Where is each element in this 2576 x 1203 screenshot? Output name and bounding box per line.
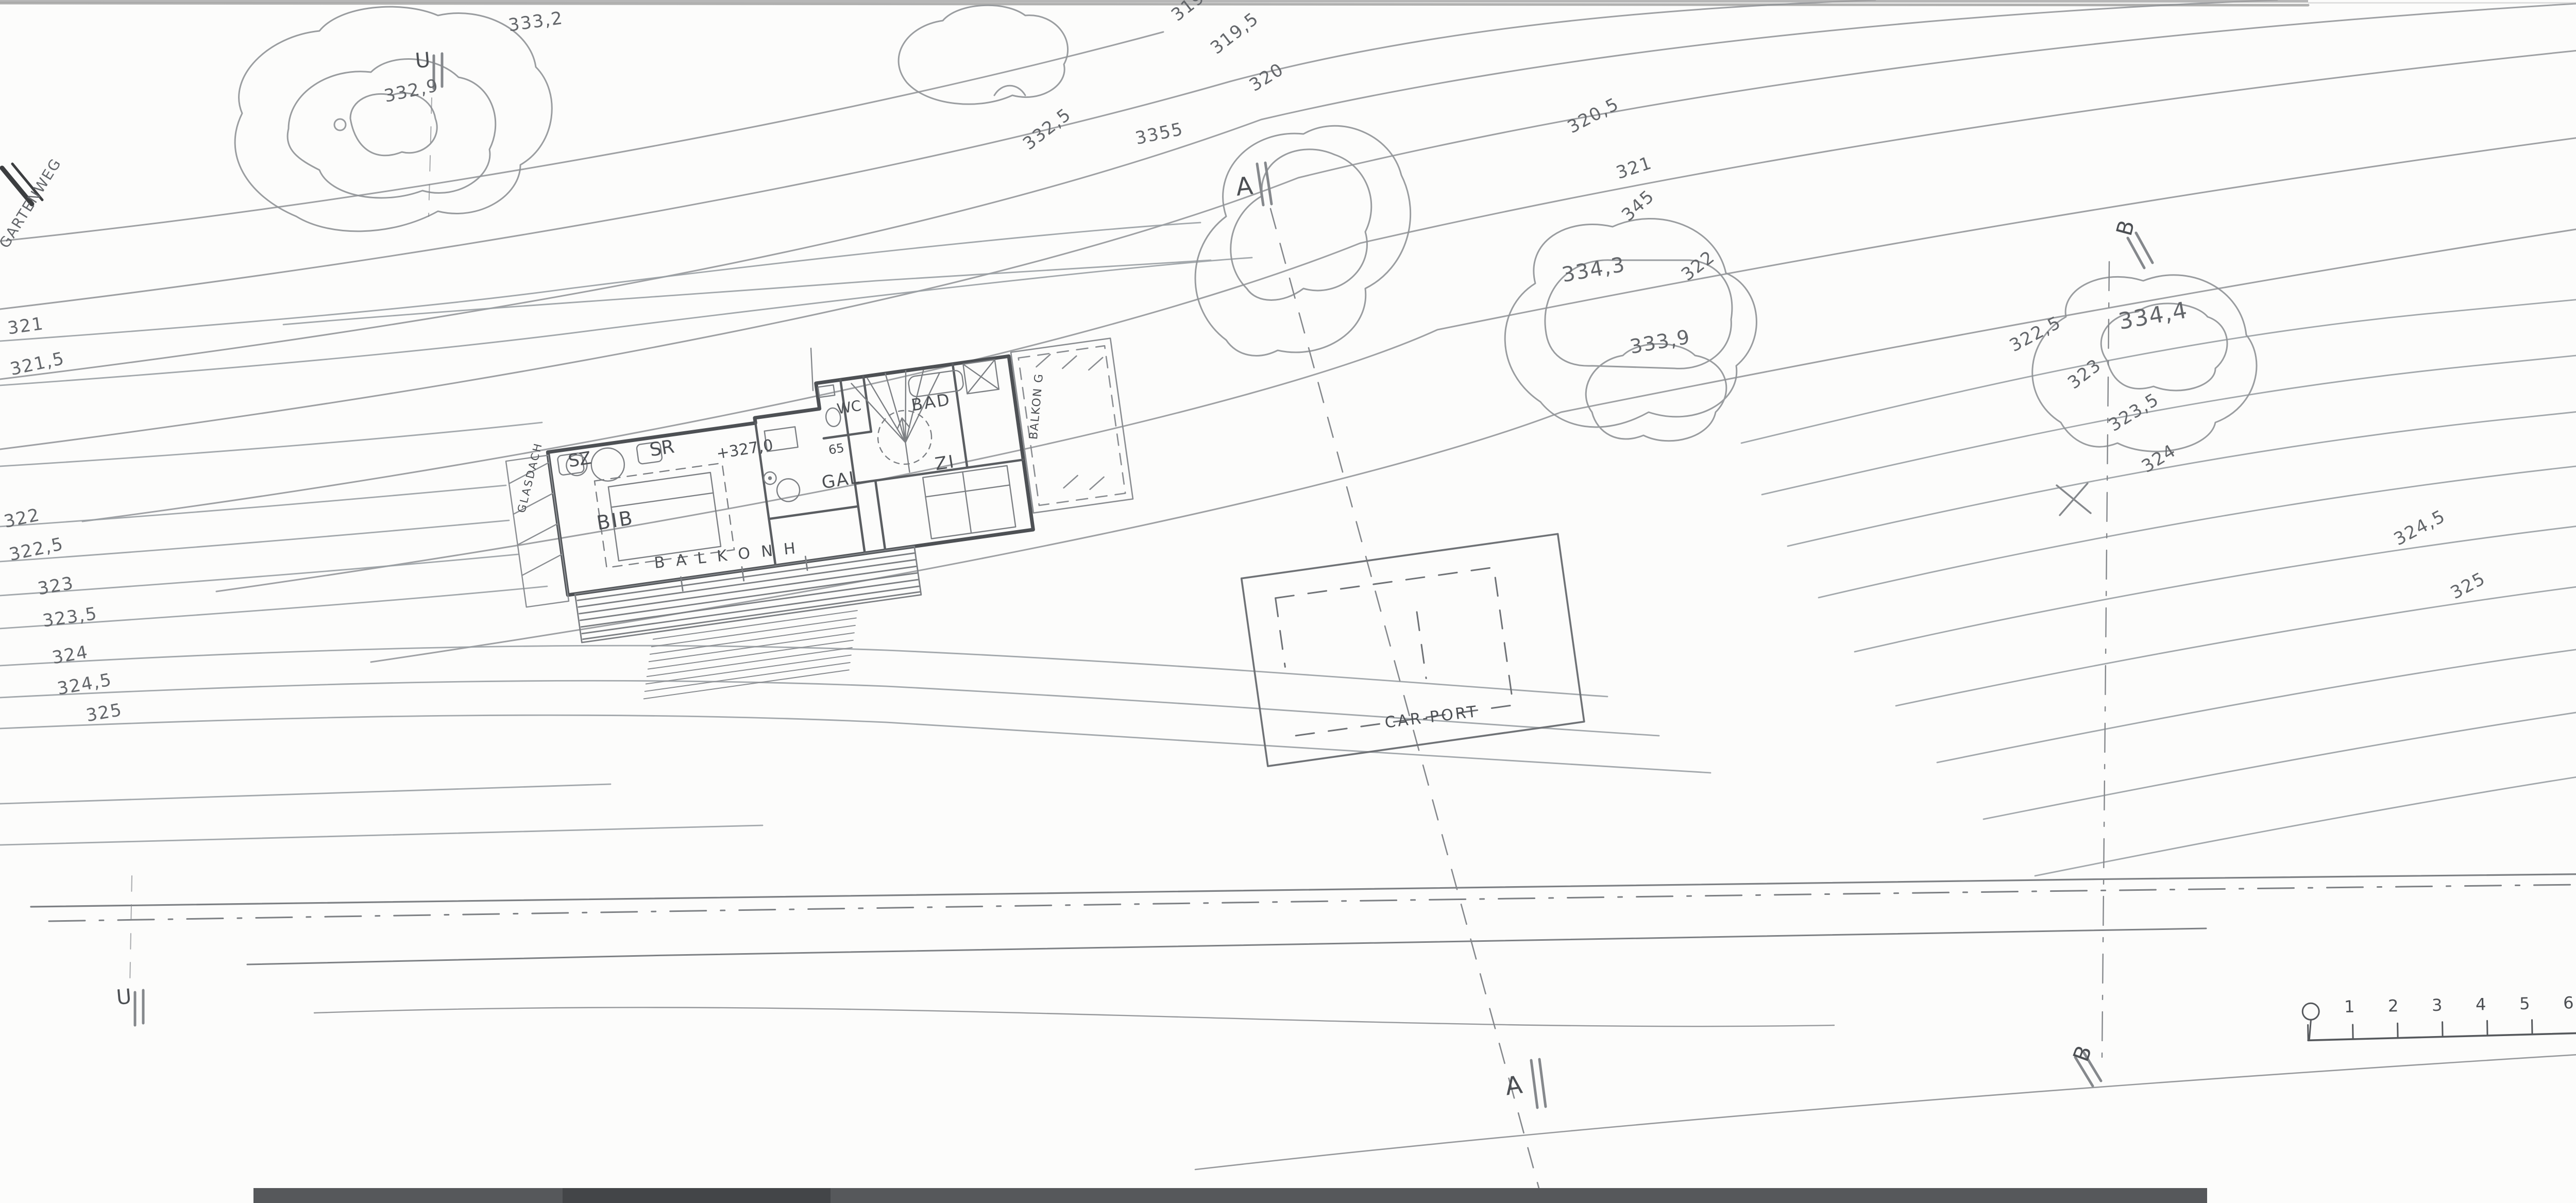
section-marker-u-bottom: U	[115, 985, 132, 1009]
plan-label-sr: SR	[648, 436, 676, 461]
section-marker-u-top: U	[414, 48, 431, 73]
carport	[1242, 534, 1584, 766]
scanner-edge-top-light	[2308, 2, 2576, 4]
scale-number: 4	[2476, 994, 2486, 1014]
plan-label-z1: ZI	[934, 451, 957, 475]
contour-lines-left	[0, 223, 1710, 845]
scale-number: 3	[2432, 995, 2443, 1015]
scale-number: 6	[2563, 993, 2574, 1012]
terrace-steps	[636, 611, 865, 699]
scanned-site-plan-sheet: HAUS SCHRÖCK VORENTWURF VE03.1 F L Ä C H…	[0, 0, 2576, 1203]
section-line-a	[1270, 209, 1542, 1199]
plan-label-dim: 65	[827, 440, 845, 457]
glass-roof	[506, 455, 569, 607]
scale-number: 1	[2344, 997, 2355, 1016]
section-line-b	[2102, 262, 2109, 1057]
tree-canopies	[235, 5, 2257, 451]
scanner-edge-top	[0, 0, 2308, 3]
scan-marks	[0, 3, 2308, 204]
section-marker-a-top: A	[1234, 172, 1255, 202]
street-lines	[31, 872, 2576, 1170]
scale-number: 5	[2519, 994, 2530, 1013]
site-drawing	[0, 0, 2576, 1203]
x-mark	[2057, 483, 2091, 515]
scanner-edge-bottom	[253, 1188, 2207, 1203]
scale-number: 2	[2388, 996, 2399, 1015]
plan-label-sz: SZ	[567, 448, 593, 472]
